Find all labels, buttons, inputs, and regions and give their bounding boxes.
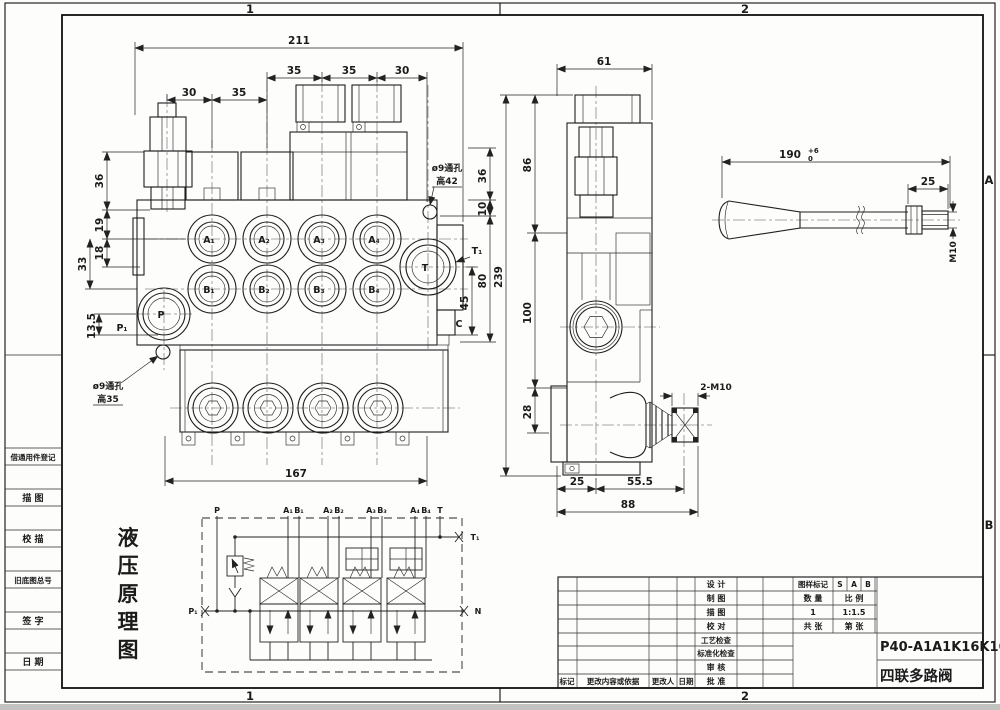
port-label-b4: B₄ [368,285,379,296]
dim-m10: M10 [949,241,959,262]
schematic-valve-4 [387,548,425,660]
left-panel-row-borrow: 借通用件登记 [10,452,56,462]
part-name: 四联多路阀 [880,667,953,685]
sch-label-b4: B₄ [421,506,431,515]
sch-label-b2: B₂ [334,506,344,515]
left-panel-row-trace: 描 图 [22,492,43,504]
schematic-title-char-4: 理 [118,610,139,634]
sch-label-p: P [214,506,220,515]
schematic-title: 液 压 原 理 图 [118,526,139,662]
sch-label-p1: P₁ [188,607,198,616]
port-label-p1: P₁ [116,323,127,334]
role-standard-check: 标准化检查 [696,648,735,658]
port-label-a2: A₂ [258,235,270,246]
hole-note-top-line2: 高42 [436,175,458,187]
spool-end-3 [298,383,354,445]
dim-33: 33 [77,257,89,272]
qty-value: 1 [810,608,816,617]
sch-label-n: N [475,607,482,616]
sheet-no-label: 第 张 [845,621,865,631]
schematic-title-char-3: 原 [118,582,139,606]
dim-18: 18 [94,246,106,261]
front-ports: A₁ A₂ A₃ A₄ B₁ B₂ B₃ B₄ P T P₁ T₁ C [116,205,482,359]
left-panel: 借通用件登记 描 图 校 描 旧底图总号 签 字 日 期 [5,448,62,670]
spool-end-1 [182,383,244,445]
schematic-lines [201,516,468,660]
mark-a: A [851,580,857,589]
port-label-p: P [158,310,165,321]
port-label-b3: B₃ [313,285,324,296]
schematic-valve-1 [260,567,298,660]
zone-label-row-b: B [985,518,994,532]
dim-top-35b: 35 [342,65,357,77]
sch-label-t1: T₁ [471,533,480,542]
front-port-bosses [186,152,293,200]
zone-label-top-2: 2 [741,2,749,16]
hydraulic-schematic: 液 压 原 理 图 P A₁ B₁ A₂ B₂ A₃ B₃ A₄ B₄ T T₁… [118,506,482,672]
port-label-c: C [456,319,463,330]
dim-10: 10 [477,202,489,217]
front-dimensions: 211 35 35 30 30 35 36 19 18 33 [77,35,496,486]
port-label-t1: T₁ [472,246,483,257]
front-relief-valve [144,103,192,209]
schematic-valve-3 [343,548,381,660]
sch-label-t: T [437,506,443,515]
page-frame: 1 2 1 2 A B [0,2,1000,710]
title-block-revision-headers: 标记 更改内容或依据 更改人 日期 [559,676,694,686]
qty-label: 数 量 [804,593,823,603]
dim-25-lever: 25 [921,176,936,188]
zone-label-bottom-2: 2 [741,689,749,703]
schematic-relief-valve [227,537,254,611]
dim-190-tol-lower: 0 [808,155,813,163]
dim-36-right: 36 [477,169,489,184]
side-view-centerlines [560,86,712,480]
title-block: 设 计 制 图 描 图 校 对 工艺检查 标准化检查 审 核 批 准 标记 更改… [558,577,1000,688]
port-label-a4: A₄ [368,235,380,246]
dim-190: 190 [779,149,801,161]
lever-view: 190 +6 0 25 M10 [712,147,960,263]
schematic-title-char-5: 图 [118,638,139,662]
left-panel-row-check-trace: 校 描 [22,533,43,545]
dim-19: 19 [94,218,106,233]
sheets-total-label: 共 张 [804,621,824,631]
dim-100: 100 [522,302,534,324]
zone-label-top-1: 1 [246,2,254,16]
sch-label-a4: A₄ [410,506,420,515]
drawing-canvas: 1 2 1 2 A B 借通用件登记 描 图 校 描 旧底图总号 签 字 日 期 [0,0,1000,710]
front-view: A₁ A₂ A₃ A₄ B₁ B₂ B₃ B₄ P T P₁ T₁ C [77,35,496,486]
dim-167: 167 [285,468,307,480]
side-view: 61 86 100 28 239 25 55.5 88 2-M10 [493,56,732,517]
port-label-a1: A₁ [203,235,215,246]
scale-label: 比 例 [845,593,864,603]
role-process-check: 工艺检查 [701,635,731,645]
note-2-m10: 2-M10 [700,383,731,393]
part-number: P40-A1A1K16K16 [880,640,1000,655]
front-lower-block [180,345,448,445]
side-view-body [551,95,652,475]
schematic-boundary [202,518,462,672]
left-panel-row-old-drawing-no: 旧底图总号 [14,575,52,585]
role-proof: 校 对 [707,621,726,631]
role-draw: 制 图 [707,593,726,603]
rev-header-person: 更改人 [652,676,675,686]
dim-36-left: 36 [94,174,106,189]
schematic-port-labels: P A₁ B₁ A₂ B₂ A₃ B₃ A₄ B₄ T T₁ N P₁ [188,506,481,616]
blueprint-page: 1 2 1 2 A B 借通用件登记 描 图 校 描 旧底图总号 签 字 日 期 [0,0,1000,710]
dim-86: 86 [522,158,534,173]
left-panel-row-signature: 签 字 [21,615,43,627]
title-block-roles: 设 计 制 图 描 图 校 对 工艺检查 标准化检查 审 核 批 准 [696,579,735,686]
rev-header-mark: 标记 [559,676,575,686]
dim-28: 28 [522,405,534,420]
dim-239: 239 [493,266,505,288]
mark-label: 图样标记 [798,579,828,589]
schematic-title-char-2: 压 [118,554,139,578]
sch-label-b1: B₁ [294,506,304,515]
zone-label-bottom-1: 1 [246,689,254,703]
schematic-title-char-1: 液 [118,526,139,550]
dim-25-side: 25 [570,476,585,488]
role-approve: 批 准 [707,676,726,686]
port-label-b2: B₂ [258,285,269,296]
rev-header-date: 日期 [679,676,694,686]
dim-88: 88 [621,499,636,511]
dim-55-5: 55.5 [627,476,653,488]
port-label-t: T [422,263,429,274]
dim-left-35: 35 [232,87,247,99]
role-design: 设 计 [707,579,726,589]
dim-45: 45 [459,296,471,311]
hole-note-bottom-line1: ø9通孔 [93,380,123,392]
dim-13-5: 13.5 [86,313,98,339]
side-view-dimensions: 61 86 100 28 239 25 55.5 88 2-M10 [493,56,732,517]
mark-s: S [837,580,842,589]
role-review: 审 核 [707,662,726,672]
left-panel-row-date: 日 期 [22,656,43,668]
role-trace: 描 图 [707,607,726,617]
dim-211: 211 [288,35,310,47]
sch-label-a3: A₃ [366,506,376,515]
dim-190-tol-upper: +6 [808,147,819,155]
mark-b: B [865,580,871,589]
front-top-caps [290,85,407,200]
sch-label-a2: A₂ [323,506,333,515]
rev-header-content: 更改内容或依据 [587,676,640,686]
hole-note-bottom-line2: 高35 [97,393,119,405]
dim-top-35a: 35 [287,65,302,77]
zone-label-row-a: A [985,173,994,187]
spool-end-2 [243,383,299,445]
scale-value: 1:1.5 [843,608,866,617]
dim-left-30: 30 [182,87,197,99]
schematic-valve-2 [300,567,338,660]
port-label-b1: B₁ [203,285,214,296]
hole-note-top-line1: ø9通孔 [432,162,462,174]
sch-label-a1: A₁ [283,506,293,515]
sch-label-a3b: B₃ [377,506,387,515]
dim-61: 61 [597,56,612,68]
dim-top-30: 30 [395,65,410,77]
dim-80: 80 [477,274,489,289]
port-label-a3: A₃ [313,235,325,246]
spool-end-4 [353,383,409,445]
